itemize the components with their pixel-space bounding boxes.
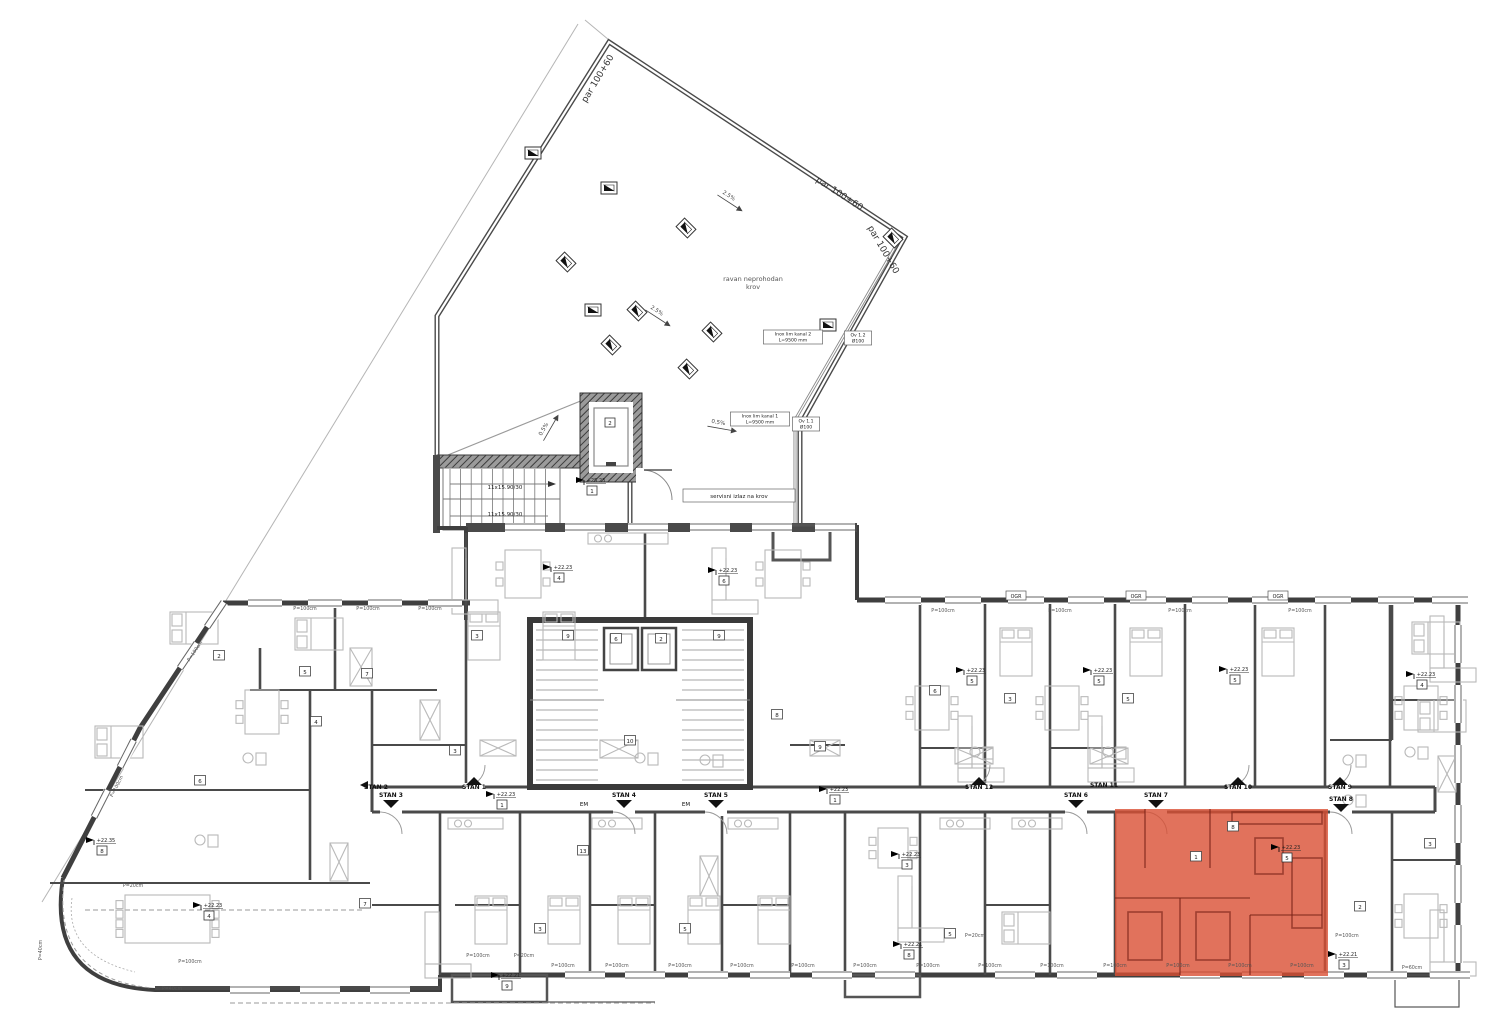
svg-text:STAN 11: STAN 11 bbox=[1090, 782, 1118, 789]
svg-text:13: 13 bbox=[580, 849, 587, 855]
wardrobe-icon bbox=[480, 740, 516, 756]
apartment-marker-stan-5: STAN 5 bbox=[704, 792, 728, 808]
highlighted-apartment-stan7[interactable] bbox=[1115, 809, 1328, 976]
svg-text:10: 10 bbox=[627, 739, 634, 745]
apartment-marker-stan-4: STAN 4 bbox=[612, 792, 636, 808]
svg-text:+22.23: +22.23 bbox=[719, 568, 738, 574]
roof-drain-icon bbox=[585, 304, 601, 316]
window bbox=[370, 986, 410, 995]
corridor bbox=[372, 787, 1435, 812]
window bbox=[875, 971, 915, 980]
dining-table-icon bbox=[1395, 686, 1447, 730]
sofa-icon bbox=[1430, 910, 1476, 976]
window bbox=[1378, 596, 1414, 605]
window bbox=[505, 523, 545, 532]
svg-text:STAN 10: STAN 10 bbox=[1224, 784, 1252, 791]
svg-text:Inox lim kanal 1: Inox lim kanal 1 bbox=[742, 414, 778, 420]
floor-plan-drawing: par 100+60par 100+60par 100+60ravan nepr… bbox=[0, 0, 1500, 1023]
window bbox=[248, 599, 282, 608]
bed-icon bbox=[1262, 628, 1294, 676]
svg-text:STAN 3: STAN 3 bbox=[379, 792, 403, 799]
svg-text:P=100cm: P=100cm bbox=[178, 959, 202, 965]
bed-icon bbox=[688, 896, 720, 944]
window bbox=[690, 523, 730, 532]
window bbox=[300, 986, 340, 995]
level-marker: +22.233 bbox=[891, 851, 921, 869]
svg-text:6: 6 bbox=[614, 637, 618, 643]
window bbox=[230, 986, 270, 995]
svg-text:3: 3 bbox=[475, 634, 479, 640]
svg-text:Ø100: Ø100 bbox=[852, 338, 864, 345]
svg-text:1: 1 bbox=[1194, 855, 1198, 861]
svg-text:+22.21: +22.21 bbox=[904, 942, 923, 948]
svg-text:5: 5 bbox=[1285, 856, 1289, 862]
svg-text:P=100cm: P=100cm bbox=[730, 963, 754, 969]
svg-text:4: 4 bbox=[557, 576, 561, 582]
svg-text:STAN 8: STAN 8 bbox=[1329, 796, 1353, 803]
apartment-marker-stan-11: STAN 11 bbox=[1090, 782, 1118, 789]
wardrobe-icon bbox=[700, 856, 718, 896]
svg-text:P=100cm: P=100cm bbox=[1103, 963, 1127, 969]
window bbox=[1454, 685, 1463, 723]
window bbox=[90, 788, 112, 819]
svg-text:OGR: OGR bbox=[1011, 594, 1022, 600]
svg-text:1: 1 bbox=[590, 489, 594, 495]
svg-text:2: 2 bbox=[659, 637, 663, 643]
wardrobe-icon bbox=[955, 748, 993, 764]
svg-text:krov: krov bbox=[746, 283, 760, 291]
window bbox=[1454, 865, 1463, 903]
roof-drain-icon bbox=[820, 319, 836, 331]
svg-text:EM: EM bbox=[580, 802, 588, 808]
window bbox=[812, 971, 852, 980]
apartment-marker-stan-9: STAN 9 bbox=[1328, 777, 1352, 791]
svg-text:P=100cm: P=100cm bbox=[853, 963, 877, 969]
window bbox=[1192, 596, 1228, 605]
svg-text:+22.35: +22.35 bbox=[97, 838, 116, 844]
dining-table-icon bbox=[1036, 686, 1088, 730]
level-marker: +22.218 bbox=[893, 941, 923, 959]
svg-text:+22.23: +22.23 bbox=[554, 565, 573, 571]
svg-text:2: 2 bbox=[1358, 905, 1362, 911]
sofa-icon bbox=[425, 912, 471, 978]
svg-text:11x15.90/30: 11x15.90/30 bbox=[488, 485, 523, 491]
svg-text:5: 5 bbox=[1126, 697, 1130, 703]
svg-text:+22.23: +22.23 bbox=[1094, 668, 1113, 674]
svg-text:P=40cm: P=40cm bbox=[162, 986, 183, 992]
svg-text:P=100cm: P=100cm bbox=[293, 606, 317, 612]
window bbox=[688, 971, 728, 980]
level-marker: +22.219 bbox=[491, 972, 521, 990]
bed-icon bbox=[475, 896, 507, 944]
svg-text:Ø100: Ø100 bbox=[800, 424, 812, 431]
wardrobe-icon bbox=[1438, 756, 1456, 792]
wardrobe-icon bbox=[330, 843, 348, 881]
window bbox=[116, 738, 138, 769]
sofa-icon bbox=[1430, 616, 1476, 682]
level-marker: +25.231 bbox=[576, 477, 606, 495]
svg-text:9: 9 bbox=[717, 634, 721, 640]
svg-text:9: 9 bbox=[505, 984, 509, 990]
svg-text:P=100cm: P=100cm bbox=[605, 963, 629, 969]
svg-text:8: 8 bbox=[1231, 825, 1235, 831]
svg-text:P=100cm: P=100cm bbox=[978, 963, 1002, 969]
roof-staircase bbox=[443, 468, 560, 530]
svg-text:P=100cm: P=100cm bbox=[466, 953, 490, 959]
elevator-shaft-roof bbox=[580, 393, 642, 482]
svg-text:P=100cm: P=100cm bbox=[551, 963, 575, 969]
svg-text:+22.21: +22.21 bbox=[1339, 952, 1358, 958]
svg-text:P=100cm: P=100cm bbox=[1168, 608, 1192, 614]
svg-text:9: 9 bbox=[818, 745, 822, 751]
window bbox=[1057, 971, 1097, 980]
level-marker: +22.213 bbox=[1328, 951, 1358, 969]
svg-text:+22.23: +22.23 bbox=[497, 792, 516, 798]
kitchen-icon bbox=[728, 818, 778, 829]
svg-text:L=9500 mm: L=9500 mm bbox=[779, 338, 808, 344]
window bbox=[1430, 971, 1470, 980]
level-marker: +22.235 bbox=[956, 667, 986, 685]
bed-icon bbox=[1002, 912, 1050, 944]
bathroom-fixtures-icon bbox=[243, 753, 266, 765]
svg-text:Ov 1.1: Ov 1.1 bbox=[798, 419, 813, 425]
svg-text:P=20cm: P=20cm bbox=[965, 933, 986, 939]
svg-text:Ov 1.2: Ov 1.2 bbox=[850, 333, 865, 339]
bed-icon bbox=[548, 896, 580, 944]
svg-text:+22.23: +22.23 bbox=[1230, 667, 1249, 673]
svg-text:P=100cm: P=100cm bbox=[418, 606, 442, 612]
level-marker: +22.358 bbox=[86, 837, 116, 855]
svg-text:P=60cm: P=60cm bbox=[1402, 965, 1423, 971]
svg-text:4: 4 bbox=[207, 914, 211, 920]
svg-text:P=20cm: P=20cm bbox=[514, 953, 535, 959]
svg-text:5: 5 bbox=[1097, 679, 1101, 685]
svg-text:+22.23: +22.23 bbox=[204, 903, 223, 909]
window bbox=[1454, 745, 1463, 783]
level-marker: +22.234 bbox=[543, 564, 573, 582]
apartment-marker-stan-3: STAN 3 bbox=[379, 792, 403, 808]
svg-text:1: 1 bbox=[833, 798, 837, 804]
window bbox=[565, 523, 605, 532]
svg-text:3: 3 bbox=[538, 927, 542, 933]
svg-text:6: 6 bbox=[198, 779, 202, 785]
svg-text:3: 3 bbox=[453, 749, 457, 755]
svg-text:+22.23: +22.23 bbox=[1417, 672, 1436, 678]
svg-text:7: 7 bbox=[365, 672, 369, 678]
svg-text:EM: EM bbox=[682, 802, 690, 808]
window bbox=[815, 523, 855, 532]
apartment-marker-stan-6: STAN 6 bbox=[1064, 792, 1088, 808]
roof-drain-icon bbox=[525, 147, 541, 159]
window bbox=[995, 971, 1035, 980]
svg-text:5: 5 bbox=[948, 932, 952, 938]
svg-text:P=100cm: P=100cm bbox=[1290, 963, 1314, 969]
svg-text:P=100cm: P=100cm bbox=[1288, 608, 1312, 614]
window bbox=[625, 971, 665, 980]
svg-text:+22.23: +22.23 bbox=[967, 668, 986, 674]
svg-text:P=100cm: P=100cm bbox=[1166, 963, 1190, 969]
svg-text:P=100cm: P=100cm bbox=[1048, 608, 1072, 614]
bathroom-fixtures-icon bbox=[1405, 747, 1428, 759]
svg-text:P=100cm: P=100cm bbox=[916, 963, 940, 969]
kitchen-icon bbox=[940, 818, 990, 829]
window bbox=[204, 600, 228, 630]
svg-text:5: 5 bbox=[970, 679, 974, 685]
svg-text:P=100cm: P=100cm bbox=[931, 608, 955, 614]
window bbox=[752, 523, 792, 532]
svg-text:8: 8 bbox=[907, 953, 911, 959]
apartment-marker-stan-12: STAN 12 bbox=[965, 777, 993, 791]
window bbox=[750, 971, 790, 980]
dining-table-icon bbox=[1395, 894, 1447, 938]
bed-icon bbox=[1130, 628, 1162, 676]
svg-text:P=100cm: P=100cm bbox=[1228, 963, 1252, 969]
svg-text:P=100cm: P=100cm bbox=[1040, 963, 1064, 969]
window bbox=[1068, 596, 1104, 605]
dining-table-icon bbox=[756, 550, 810, 598]
wardrobe-icon bbox=[1090, 748, 1128, 764]
svg-text:STAN 6: STAN 6 bbox=[1064, 792, 1088, 799]
window bbox=[1367, 971, 1407, 980]
window bbox=[1454, 925, 1463, 963]
svg-text:3: 3 bbox=[1428, 842, 1432, 848]
wardrobe-icon bbox=[350, 648, 372, 686]
svg-text:8: 8 bbox=[100, 849, 104, 855]
svg-text:servisni izlaz na krov: servisni izlaz na krov bbox=[710, 494, 768, 500]
level-marker: +22.231 bbox=[486, 791, 516, 809]
svg-text:P=100cm: P=100cm bbox=[791, 963, 815, 969]
wardrobe-icon bbox=[420, 700, 440, 740]
apartment-marker-stan-7: STAN 7 bbox=[1144, 792, 1168, 808]
svg-text:P=100cm: P=100cm bbox=[668, 963, 692, 969]
svg-text:ravan neprohodan: ravan neprohodan bbox=[723, 275, 783, 283]
svg-text:STAN 4: STAN 4 bbox=[612, 792, 636, 799]
svg-text:Inox lim kanal 2: Inox lim kanal 2 bbox=[775, 332, 811, 338]
kitchen-icon bbox=[1012, 818, 1062, 829]
apartment-marker-stan-10: STAN 10 bbox=[1224, 777, 1252, 791]
window bbox=[628, 523, 668, 532]
svg-text:5: 5 bbox=[1233, 678, 1237, 684]
level-marker: +22.231 bbox=[819, 786, 849, 804]
svg-text:STAN 12: STAN 12 bbox=[965, 784, 993, 791]
window bbox=[1454, 805, 1463, 843]
bathroom-fixtures-icon bbox=[1343, 755, 1366, 767]
svg-text:7: 7 bbox=[363, 902, 367, 908]
kitchen-icon bbox=[448, 818, 503, 829]
svg-text:OGR: OGR bbox=[1273, 594, 1284, 600]
window bbox=[1315, 596, 1351, 605]
svg-text:1: 1 bbox=[500, 803, 504, 809]
svg-text:+22.23: +22.23 bbox=[1282, 845, 1301, 851]
window bbox=[1454, 625, 1463, 663]
svg-text:+22.23: +22.23 bbox=[902, 852, 921, 858]
kitchen-icon bbox=[588, 533, 668, 544]
window bbox=[945, 596, 981, 605]
window bbox=[1432, 596, 1468, 605]
dining-table-icon bbox=[496, 550, 550, 598]
svg-text:P=100cm: P=100cm bbox=[1335, 933, 1359, 939]
svg-text:STAN 9: STAN 9 bbox=[1328, 784, 1352, 791]
bathroom-fixtures-icon bbox=[195, 835, 218, 847]
svg-text:2: 2 bbox=[217, 654, 221, 660]
window bbox=[885, 596, 921, 605]
svg-text:+22.21: +22.21 bbox=[502, 973, 521, 979]
svg-text:11x15.90/30: 11x15.90/30 bbox=[488, 512, 523, 518]
svg-text:OGR: OGR bbox=[1131, 594, 1142, 600]
svg-text:4: 4 bbox=[1420, 683, 1424, 689]
svg-text:L=9500 mm: L=9500 mm bbox=[746, 420, 775, 426]
roof-drain-icon bbox=[601, 182, 617, 194]
floor-plan-page: par 100+60par 100+60par 100+60ravan nepr… bbox=[0, 0, 1500, 1023]
svg-text:9: 9 bbox=[566, 634, 570, 640]
svg-text:8: 8 bbox=[775, 713, 779, 719]
svg-text:3: 3 bbox=[1342, 963, 1346, 969]
svg-text:P=40cm: P=40cm bbox=[38, 940, 44, 961]
window bbox=[565, 971, 605, 980]
level-marker: +22.235 bbox=[1083, 667, 1113, 685]
svg-text:+25.23: +25.23 bbox=[587, 478, 606, 484]
svg-text:6: 6 bbox=[722, 579, 726, 585]
svg-text:STAN 5: STAN 5 bbox=[704, 792, 728, 799]
svg-text:4: 4 bbox=[314, 720, 318, 726]
svg-text:STAN 7: STAN 7 bbox=[1144, 792, 1168, 799]
svg-text:5: 5 bbox=[683, 927, 687, 933]
bed-icon bbox=[1000, 628, 1032, 676]
svg-text:5: 5 bbox=[303, 670, 307, 676]
svg-text:2: 2 bbox=[608, 421, 612, 427]
svg-text:P=20cm: P=20cm bbox=[123, 883, 144, 889]
bed-icon bbox=[1412, 622, 1460, 654]
bed-icon bbox=[758, 896, 790, 944]
svg-text:6: 6 bbox=[933, 689, 937, 695]
svg-text:3: 3 bbox=[1008, 697, 1012, 703]
level-marker: +22.235 bbox=[1219, 666, 1249, 684]
dining-table-icon bbox=[236, 690, 288, 734]
bed-icon bbox=[618, 896, 650, 944]
svg-text:P=100cm: P=100cm bbox=[356, 606, 380, 612]
apartment-marker-stan-2: STAN 2 bbox=[360, 781, 388, 791]
svg-text:STAN 1: STAN 1 bbox=[462, 784, 486, 791]
svg-text:+22.23: +22.23 bbox=[830, 787, 849, 793]
core-block bbox=[530, 620, 750, 787]
svg-text:3: 3 bbox=[905, 863, 909, 869]
